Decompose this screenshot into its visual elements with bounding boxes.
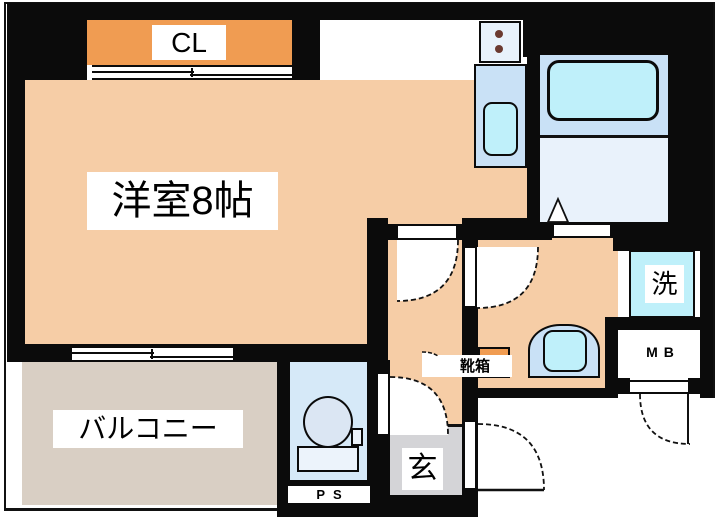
window-tick bbox=[151, 349, 153, 359]
hallway-door-leaf bbox=[463, 246, 477, 308]
bathtub-icon bbox=[547, 60, 659, 121]
meter-box-label: MB bbox=[628, 342, 692, 362]
closet-label: CL bbox=[152, 25, 226, 60]
entrance-label: 玄 bbox=[402, 448, 443, 490]
kitchen-sink-icon bbox=[483, 102, 518, 156]
wall-south-band-entrance bbox=[383, 495, 478, 517]
main-room-label: 洋室8帖 bbox=[87, 172, 278, 230]
window-rail bbox=[150, 356, 233, 358]
wall-meterbox-stub-right bbox=[688, 378, 713, 394]
wash-basin-bowl-icon bbox=[543, 330, 587, 372]
burner-icon bbox=[495, 45, 503, 53]
wall-laundry-south bbox=[613, 317, 713, 330]
slider-rail bbox=[92, 71, 194, 73]
toilet-bowl-icon bbox=[303, 396, 353, 448]
laundry-label: 洗 bbox=[645, 265, 684, 303]
window-rail bbox=[72, 352, 154, 354]
slider-rail bbox=[190, 74, 292, 76]
toilet-flush-icon bbox=[351, 428, 363, 446]
wall-bath-right bbox=[668, 55, 713, 240]
kitchen-front-floor bbox=[474, 166, 527, 224]
meter-box-door-leaf bbox=[628, 380, 690, 394]
toilet-tank-icon bbox=[297, 446, 359, 472]
balcony-label: バルコニー bbox=[53, 410, 243, 448]
entrance-door-leaf bbox=[463, 420, 477, 490]
stove-icon bbox=[479, 21, 521, 63]
corridor-floor bbox=[385, 238, 462, 426]
wall-top-left-pillar bbox=[7, 3, 87, 80]
wall-closet-right bbox=[292, 20, 320, 80]
slider-tick bbox=[191, 68, 193, 77]
wall-laundry-north bbox=[613, 222, 713, 251]
burner-icon bbox=[495, 30, 503, 38]
outline-left bbox=[4, 2, 6, 510]
floor-plan: CL 洋室8帖 バルコニー 玄 洗 靴箱 PS MB bbox=[0, 0, 720, 521]
wall-left bbox=[7, 80, 25, 346]
balcony-sliding-window bbox=[72, 346, 233, 362]
pipe-space-label: PS bbox=[288, 486, 370, 503]
bath-door-leaf bbox=[552, 223, 612, 238]
wall-room-east bbox=[367, 218, 388, 368]
toilet-door-leaf bbox=[376, 372, 390, 436]
room-door-leaf bbox=[396, 224, 458, 240]
closet-sliding-door bbox=[92, 65, 292, 80]
shoe-box-label: 靴箱 bbox=[438, 355, 512, 377]
wall-top-right-block bbox=[523, 3, 713, 57]
balcony-railing bbox=[4, 508, 292, 511]
wall-kitchen-bath bbox=[527, 20, 540, 224]
main-room-floor-lower bbox=[25, 222, 367, 346]
hallway-floor bbox=[478, 238, 618, 322]
outline-right bbox=[713, 2, 715, 398]
wall-entrance-north bbox=[478, 388, 605, 398]
bathroom-floor bbox=[540, 135, 668, 222]
